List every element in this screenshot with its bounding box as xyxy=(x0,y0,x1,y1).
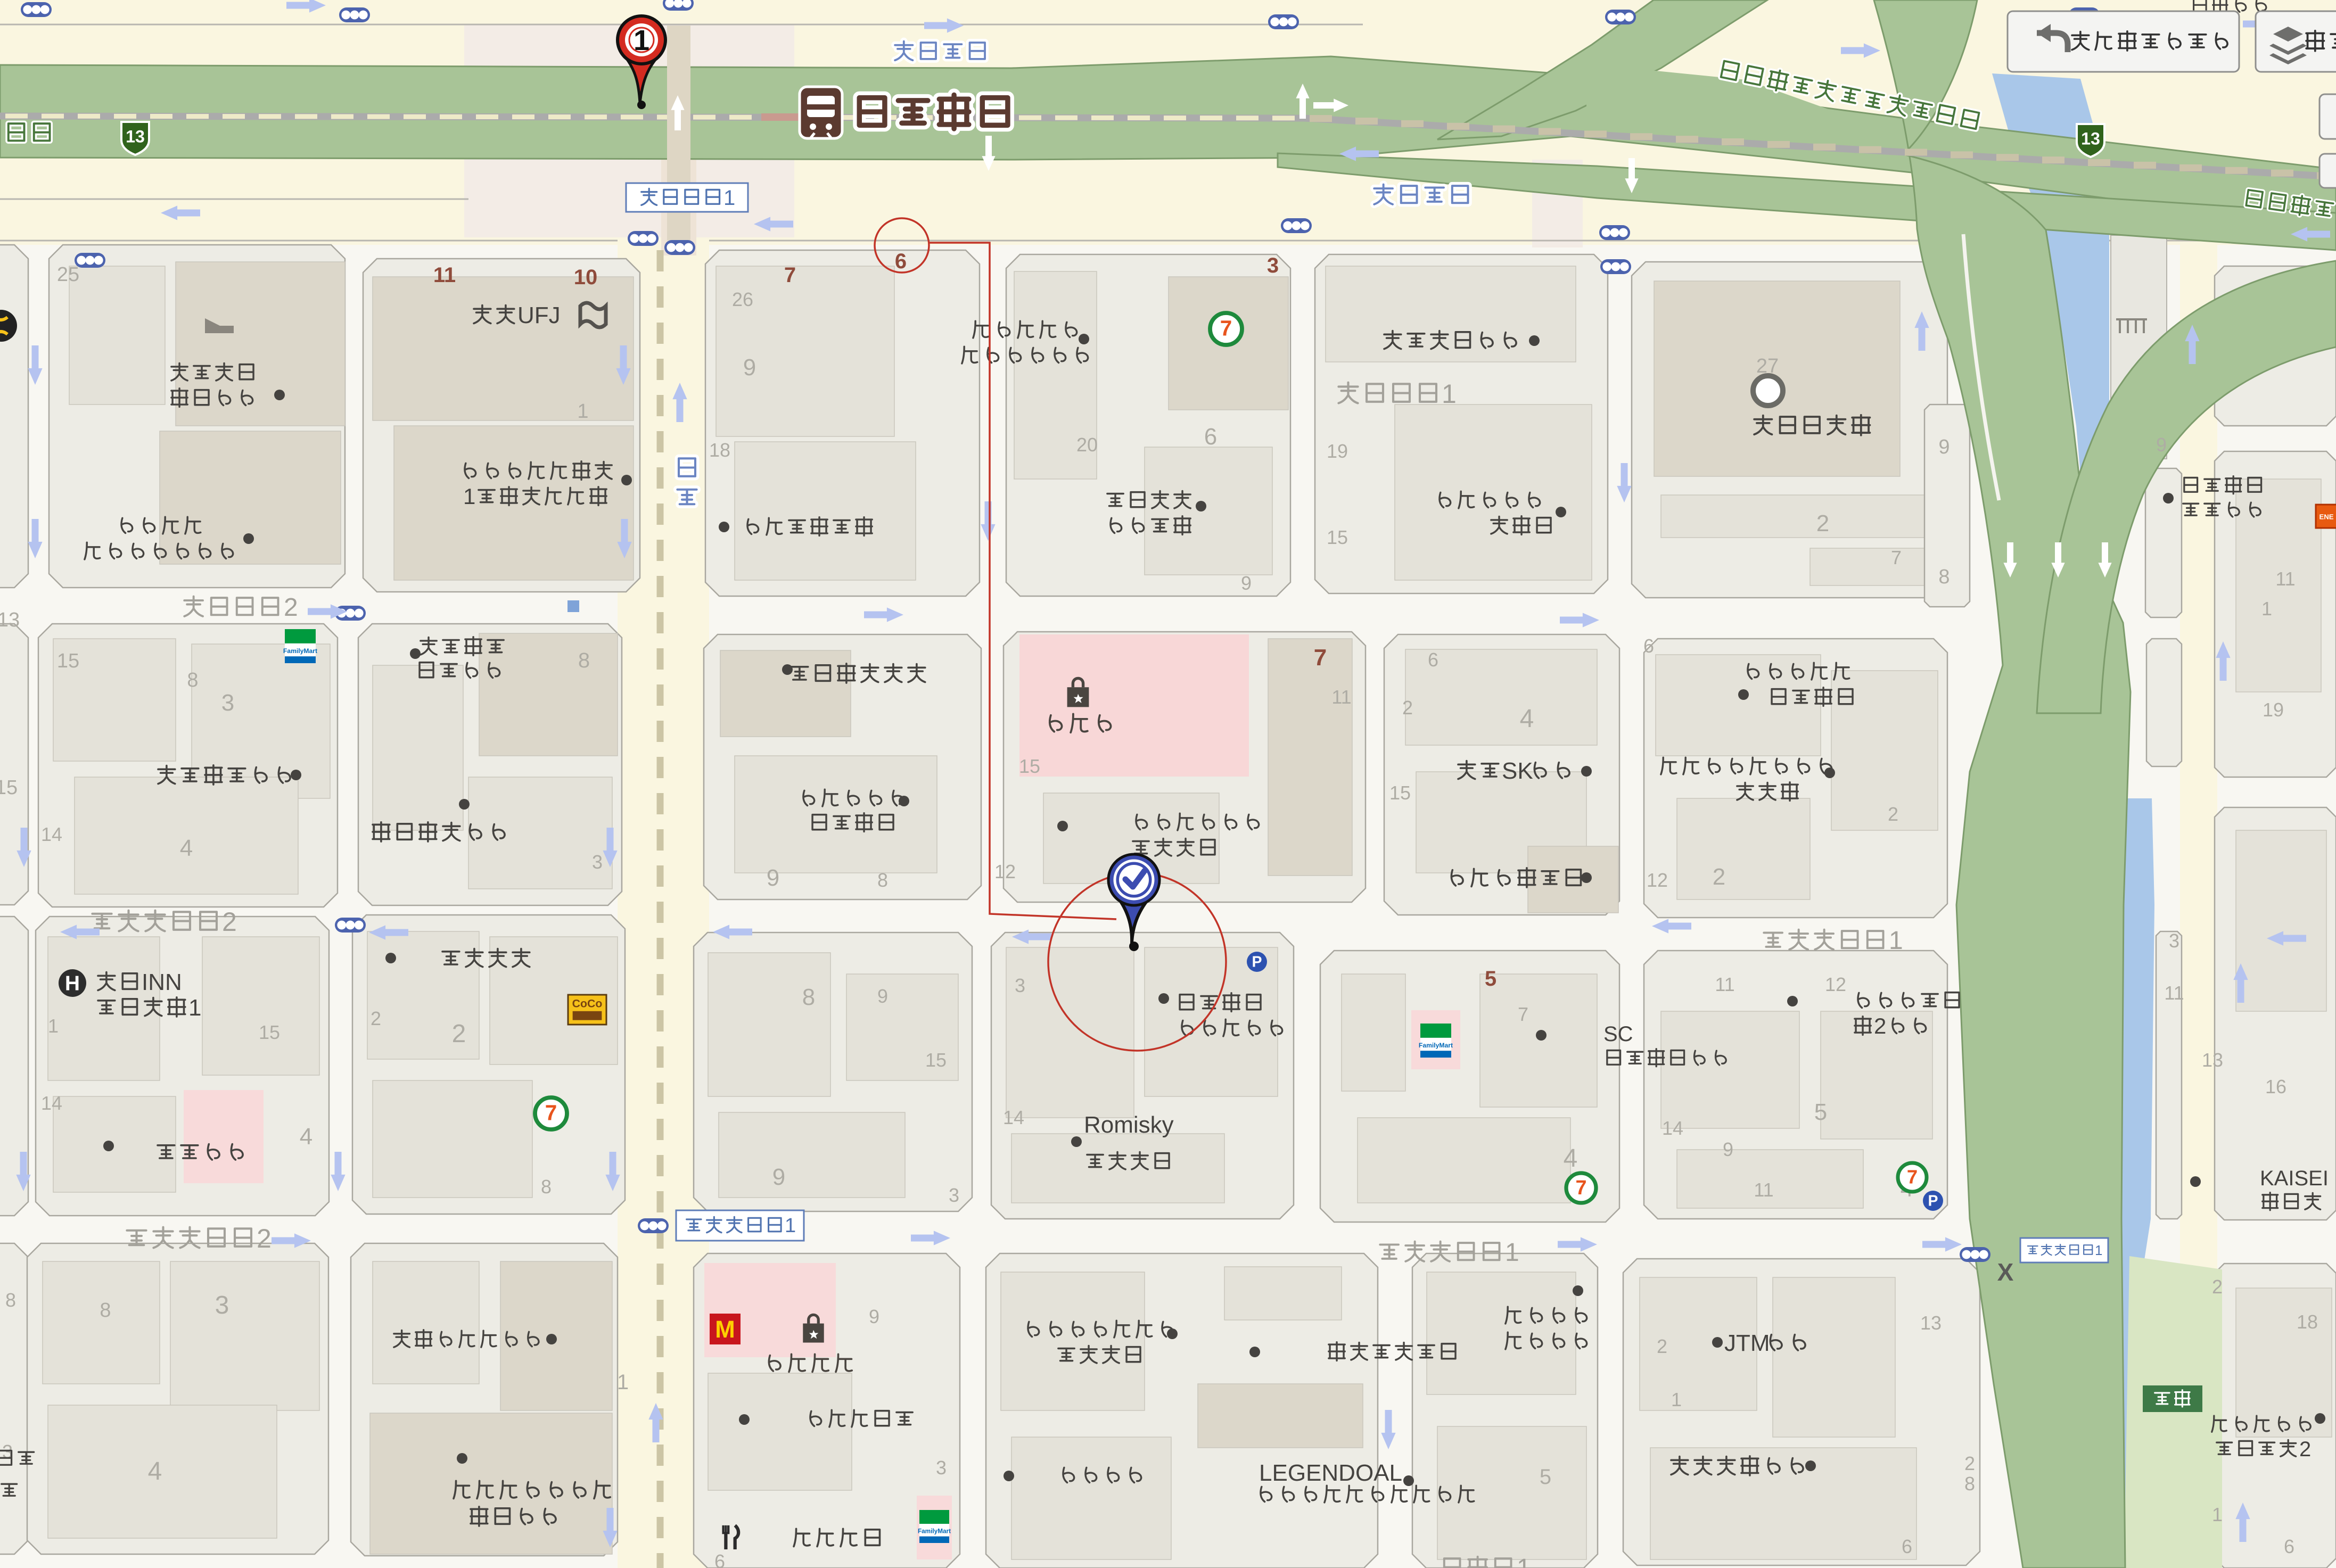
svg-text:12: 12 xyxy=(1647,869,1668,891)
svg-text:1: 1 xyxy=(1889,927,1903,955)
svg-text:2: 2 xyxy=(1402,697,1413,719)
svg-text:1: 1 xyxy=(617,1371,629,1394)
svg-text:19: 19 xyxy=(2263,699,2284,721)
svg-text:2: 2 xyxy=(1657,1335,1667,1357)
svg-text:6: 6 xyxy=(895,250,907,273)
svg-text:14: 14 xyxy=(41,1092,62,1114)
svg-text:1: 1 xyxy=(2095,1242,2102,1258)
svg-text:11: 11 xyxy=(2275,568,2295,590)
svg-text:13: 13 xyxy=(2081,129,2100,148)
svg-text:6: 6 xyxy=(1902,1536,1912,1557)
svg-text:27: 27 xyxy=(1756,355,1779,377)
svg-text:19: 19 xyxy=(1327,440,1348,462)
svg-text:26: 26 xyxy=(732,288,753,310)
svg-text:7: 7 xyxy=(1891,547,1902,568)
svg-text:11: 11 xyxy=(1715,973,1734,995)
svg-text:8: 8 xyxy=(5,1289,16,1311)
svg-text:3: 3 xyxy=(936,1457,947,1479)
svg-text:M: M xyxy=(715,1316,735,1343)
svg-text:18: 18 xyxy=(709,439,730,461)
svg-text:1: 1 xyxy=(463,484,475,509)
svg-text:FamilyMart: FamilyMart xyxy=(283,647,317,655)
svg-text:25: 25 xyxy=(57,263,79,286)
svg-text:2: 2 xyxy=(1888,803,1898,825)
svg-text:CoCo: CoCo xyxy=(572,997,603,1010)
svg-text:9: 9 xyxy=(877,985,888,1007)
svg-text:10: 10 xyxy=(574,266,598,289)
svg-text:3: 3 xyxy=(215,1291,229,1319)
svg-text:UFJ: UFJ xyxy=(517,302,561,328)
svg-text:6: 6 xyxy=(2284,1536,2294,1557)
svg-text:1: 1 xyxy=(2261,598,2272,620)
svg-text:1: 1 xyxy=(188,995,201,1021)
svg-text:20: 20 xyxy=(1076,434,1098,456)
svg-text:16: 16 xyxy=(2265,1076,2286,1097)
svg-text:2: 2 xyxy=(222,907,237,937)
svg-text:1: 1 xyxy=(48,1015,59,1037)
svg-text:FamilyMart: FamilyMart xyxy=(918,1528,951,1534)
svg-text:ENE: ENE xyxy=(2319,513,2333,521)
svg-text:12: 12 xyxy=(1825,973,1846,995)
svg-text:5: 5 xyxy=(1814,1099,1827,1125)
svg-text:9: 9 xyxy=(767,865,779,891)
svg-text:2: 2 xyxy=(2299,1438,2311,1461)
svg-text:15: 15 xyxy=(1327,526,1348,548)
svg-text:X: X xyxy=(1997,1258,2014,1286)
svg-text:4: 4 xyxy=(1564,1144,1578,1173)
svg-text:SK: SK xyxy=(1502,758,1533,784)
svg-text:9: 9 xyxy=(772,1164,785,1190)
svg-text:13: 13 xyxy=(2202,1049,2223,1071)
svg-text:9: 9 xyxy=(1723,1138,1733,1160)
svg-text:6: 6 xyxy=(1428,649,1438,671)
svg-text:14: 14 xyxy=(41,823,62,845)
svg-text:6: 6 xyxy=(1204,424,1217,450)
svg-text:4: 4 xyxy=(148,1457,162,1486)
svg-text:14: 14 xyxy=(1662,1117,1683,1139)
svg-text:13: 13 xyxy=(126,127,145,146)
svg-text:1: 1 xyxy=(785,1215,796,1237)
svg-text:9: 9 xyxy=(1241,572,1252,594)
svg-text:2: 2 xyxy=(257,1224,272,1253)
svg-text:P: P xyxy=(1928,1193,1938,1210)
svg-text:8: 8 xyxy=(877,869,888,891)
svg-text:1: 1 xyxy=(1517,1554,1531,1568)
svg-text:1: 1 xyxy=(1442,379,1457,409)
svg-text:KAISEI: KAISEI xyxy=(2260,1167,2329,1190)
svg-text:3: 3 xyxy=(1015,975,1025,996)
svg-text:LEGENDOAL: LEGENDOAL xyxy=(1259,1460,1402,1486)
svg-text:8: 8 xyxy=(541,1176,552,1198)
svg-text:8: 8 xyxy=(802,984,815,1010)
svg-text:9: 9 xyxy=(2156,434,2167,456)
svg-text:5: 5 xyxy=(1540,1465,1551,1489)
svg-text:15: 15 xyxy=(57,650,79,672)
svg-text:1: 1 xyxy=(723,186,735,210)
svg-text:FamilyMart: FamilyMart xyxy=(1419,1042,1453,1049)
svg-text:15: 15 xyxy=(0,777,18,799)
svg-text:1: 1 xyxy=(1671,1389,1682,1410)
svg-text:15: 15 xyxy=(1019,755,1040,777)
svg-text:9: 9 xyxy=(869,1306,879,1327)
svg-text:2: 2 xyxy=(1713,864,1725,890)
svg-text:6: 6 xyxy=(1643,635,1654,657)
svg-text:Romisky: Romisky xyxy=(1084,1112,1174,1138)
svg-text:2: 2 xyxy=(2212,1276,2223,1298)
svg-text:4: 4 xyxy=(300,1124,312,1150)
svg-text:1: 1 xyxy=(634,24,649,56)
svg-text:7: 7 xyxy=(1220,316,1232,341)
svg-text:3: 3 xyxy=(949,1184,959,1206)
svg-text:9: 9 xyxy=(743,354,756,381)
svg-text:P: P xyxy=(1252,954,1262,971)
svg-text:8: 8 xyxy=(1938,566,1950,588)
svg-text:8: 8 xyxy=(578,649,590,672)
svg-text:2: 2 xyxy=(1874,1013,1886,1038)
svg-text:7: 7 xyxy=(1575,1177,1586,1199)
svg-text:H: H xyxy=(65,972,80,995)
svg-text:2: 2 xyxy=(371,1008,381,1029)
svg-text:2: 2 xyxy=(284,593,298,622)
svg-text:9: 9 xyxy=(1938,436,1950,458)
svg-text:2: 2 xyxy=(1816,510,1829,537)
svg-text:1: 1 xyxy=(577,400,588,423)
svg-text:7: 7 xyxy=(1518,1003,1528,1025)
svg-text:JTM: JTM xyxy=(1724,1330,1770,1356)
svg-text:8: 8 xyxy=(100,1299,111,1322)
svg-text:15: 15 xyxy=(1389,782,1411,804)
svg-text:3: 3 xyxy=(2169,930,2179,952)
svg-text:7: 7 xyxy=(1314,645,1327,671)
svg-text:14: 14 xyxy=(1003,1107,1024,1128)
svg-text:7: 7 xyxy=(1907,1166,1918,1187)
svg-text:4: 4 xyxy=(1520,705,1534,733)
svg-text:1: 1 xyxy=(1505,1239,1519,1267)
svg-text:2: 2 xyxy=(452,1020,466,1048)
svg-text:2: 2 xyxy=(1964,1453,1975,1474)
svg-text:11: 11 xyxy=(1754,1179,1773,1201)
svg-text:7: 7 xyxy=(784,263,796,287)
svg-text:5: 5 xyxy=(1485,967,1496,991)
svg-text:3: 3 xyxy=(592,851,603,873)
svg-text:11: 11 xyxy=(2164,982,2184,1004)
svg-text:4: 4 xyxy=(180,835,193,861)
svg-text:13: 13 xyxy=(1920,1312,1942,1334)
svg-text:8: 8 xyxy=(1964,1473,1975,1495)
svg-text:SC: SC xyxy=(1603,1022,1633,1046)
svg-text:INN: INN xyxy=(142,969,182,995)
svg-text:18: 18 xyxy=(2297,1311,2318,1333)
svg-text:3: 3 xyxy=(1267,254,1279,277)
svg-text:13: 13 xyxy=(0,609,20,631)
svg-text:6: 6 xyxy=(714,1550,725,1568)
svg-text:7: 7 xyxy=(545,1101,557,1125)
svg-text:15: 15 xyxy=(259,1021,280,1043)
svg-text:1: 1 xyxy=(2212,1504,2223,1525)
svg-text:12: 12 xyxy=(994,861,1016,882)
svg-text:15: 15 xyxy=(925,1049,947,1071)
svg-text:8: 8 xyxy=(187,669,198,691)
svg-text:11: 11 xyxy=(1331,686,1351,708)
svg-text:3: 3 xyxy=(221,690,234,716)
svg-text:11: 11 xyxy=(433,263,456,287)
